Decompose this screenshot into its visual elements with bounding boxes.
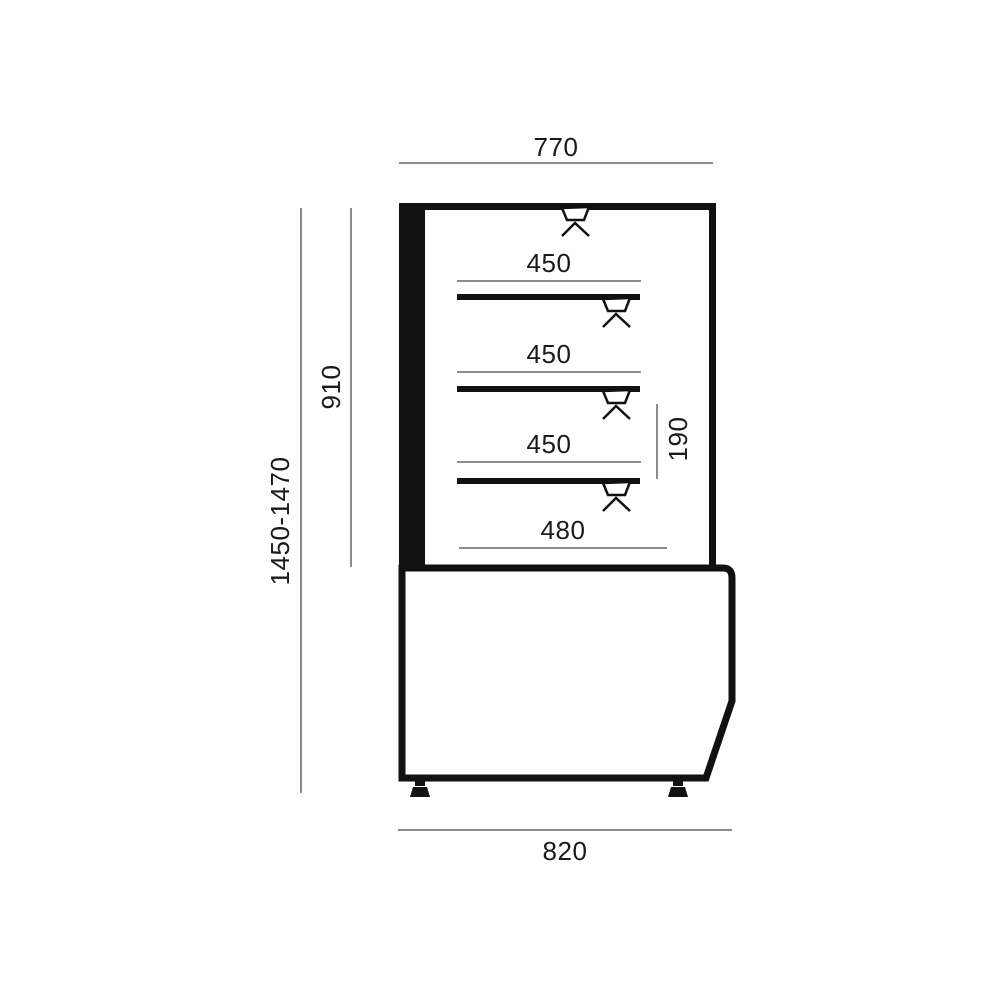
light-beam-chevron-icon — [603, 406, 630, 419]
light-beam-chevron-icon — [562, 223, 589, 236]
dim-label-overall-height: 1450-1470 — [266, 451, 294, 591]
lamp-housing-icon — [603, 298, 630, 311]
top-frame — [399, 203, 716, 210]
dim-label-shelf3-depth: 450 — [457, 430, 641, 458]
dim-label-top-width: 770 — [399, 133, 713, 161]
dim-label-base-width: 820 — [398, 837, 732, 865]
dim-label-deck-depth: 480 — [459, 516, 667, 544]
front-frame — [709, 203, 716, 568]
light-beam-chevron-icon — [603, 314, 630, 327]
lamp-housing-icon — [603, 482, 630, 495]
light-icon — [603, 390, 630, 419]
base-cabinet-outline — [402, 568, 732, 778]
back-panel — [399, 203, 425, 568]
lamp-housing-icon — [603, 390, 630, 403]
light-icon — [603, 298, 630, 327]
dim-label-shelf1-depth: 450 — [457, 249, 641, 277]
light-icon — [562, 207, 589, 236]
dim-label-shelf-gap: 190 — [664, 404, 692, 474]
dim-label-shelf2-depth: 450 — [457, 340, 641, 368]
light-icon — [603, 482, 630, 511]
lamp-housing-icon — [562, 207, 589, 220]
dimension-drawing: 770 450 450 450 480 820 910 1450-1470 19… — [0, 0, 1000, 1000]
dim-label-upper-height: 910 — [317, 352, 345, 422]
light-beam-chevron-icon — [603, 498, 630, 511]
